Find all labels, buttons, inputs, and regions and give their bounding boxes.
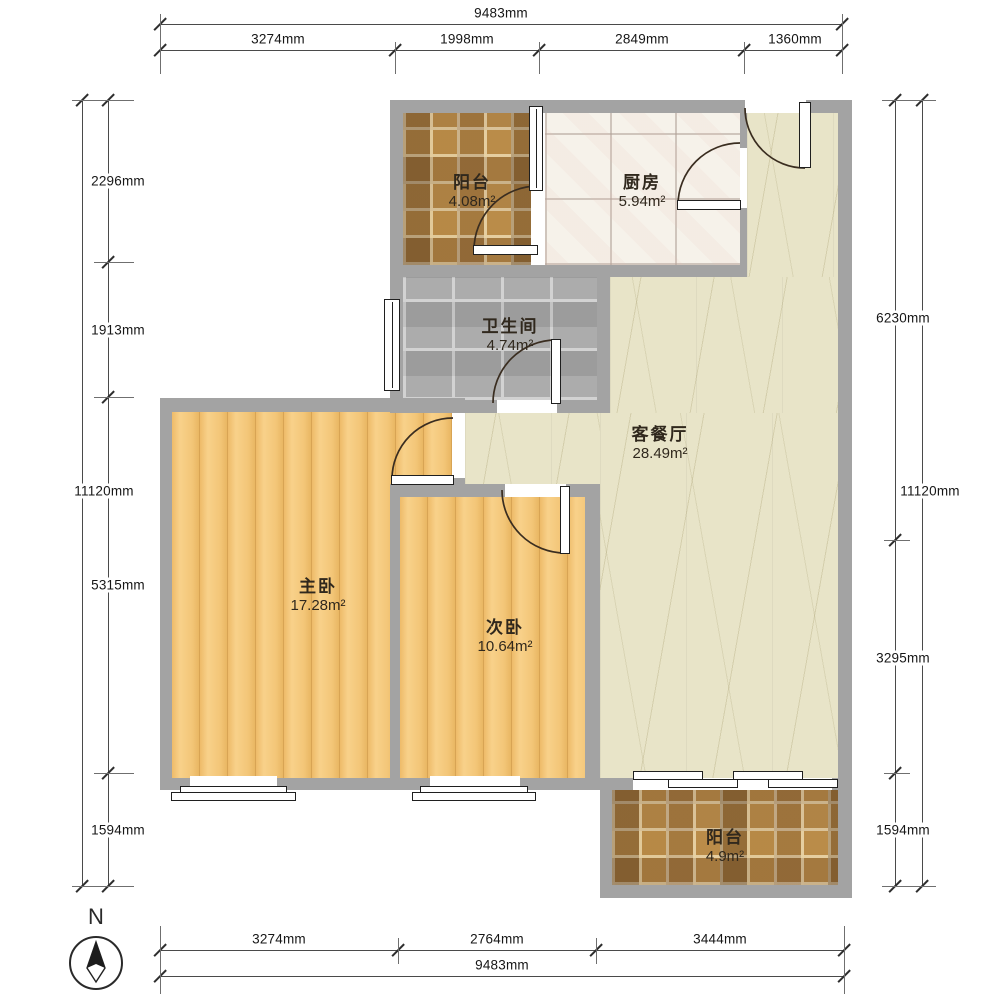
room-label-bathroom: 卫生间 4.74m² (482, 317, 539, 355)
room-area: 17.28m² (290, 596, 345, 615)
kitchen-door-leaf (677, 200, 741, 210)
bathroom-window (384, 299, 400, 391)
extension-line (842, 14, 843, 74)
dim-left-total: 11120mm (72, 484, 135, 499)
dim-right-seg-2: 3295mm (874, 651, 932, 666)
compass-needle-icon (71, 938, 121, 988)
room-label-balcony-top: 阳台 4.08m² (449, 173, 496, 211)
room-label-master-bedroom: 主卧 17.28m² (290, 577, 345, 615)
extension-line (884, 773, 910, 774)
extension-line (882, 100, 936, 101)
extension-line (398, 938, 399, 964)
dim-top-seg-4: 1360mm (766, 32, 824, 47)
extension-line (94, 773, 134, 774)
room-name: 客餐厅 (632, 425, 689, 444)
dim-right-seg-3: 1594mm (874, 823, 932, 838)
room-area: 4.08m² (449, 192, 496, 211)
room-label-balcony-bottom: 阳台 4.9m² (706, 828, 744, 866)
second-bay-window-frame-2 (412, 792, 536, 801)
kitchen-door-arc (678, 143, 740, 205)
dim-line-bottom-segments (160, 950, 844, 951)
dim-bottom-seg-3: 3444mm (691, 932, 749, 947)
master-bay-window-frame-2 (171, 792, 296, 801)
room-area: 28.49m² (632, 444, 689, 463)
extension-line (395, 42, 396, 74)
dim-top-total: 9483mm (472, 6, 530, 21)
entry-door-leaf (799, 102, 811, 168)
dim-left-seg-2: 1913mm (89, 323, 147, 338)
extension-line (596, 938, 597, 964)
sliding-door-panel-2 (668, 779, 738, 788)
room-label-living: 客餐厅 28.49m² (632, 425, 689, 463)
second-door-leaf (560, 486, 570, 554)
room-label-second-bedroom: 次卧 10.64m² (477, 618, 532, 656)
window-mullion (536, 109, 537, 188)
floor-plan-page: { "compass": { "north_label": "N" }, "ro… (0, 0, 1000, 1000)
room-name: 阳台 (706, 828, 744, 847)
compass-north-label: N (88, 906, 104, 928)
master-door-arc (392, 418, 453, 479)
room-name: 阳台 (449, 173, 496, 192)
entry-door-arc (745, 108, 805, 168)
room-label-kitchen: 厨房 5.94m² (619, 173, 666, 211)
dim-bottom-seg-2: 2764mm (468, 932, 526, 947)
extension-line (160, 14, 161, 74)
door-arcs-layer (0, 0, 1000, 1000)
master-door-leaf (391, 475, 454, 485)
dim-left-seg-3: 5315mm (89, 578, 147, 593)
bathroom-door-leaf (551, 339, 561, 404)
dim-left-seg-1: 2296mm (89, 174, 147, 189)
dim-bottom-total: 9483mm (473, 958, 531, 973)
room-area: 4.74m² (482, 336, 539, 355)
window-mullion (392, 302, 393, 388)
dim-line-bottom-total (160, 976, 844, 977)
sliding-door-panel-4 (768, 779, 838, 788)
dim-top-seg-1: 3274mm (249, 32, 307, 47)
compass (69, 936, 123, 990)
balcony-kitchen-window (529, 106, 543, 191)
extension-line (160, 926, 161, 994)
extension-line (882, 886, 936, 887)
dim-line-top-segments (160, 50, 842, 51)
extension-line (539, 42, 540, 74)
extension-line (94, 262, 134, 263)
extension-line (844, 926, 845, 994)
dim-top-seg-3: 2849mm (613, 32, 671, 47)
dim-line-right-segments (895, 100, 896, 886)
extension-line (72, 886, 134, 887)
balcony-top-door-leaf (473, 245, 538, 255)
room-name: 卫生间 (482, 317, 539, 336)
dim-top-seg-2: 1998mm (438, 32, 496, 47)
room-name: 厨房 (619, 173, 666, 192)
second-door-arc (502, 490, 565, 553)
room-area: 10.64m² (477, 637, 532, 656)
room-name: 次卧 (477, 618, 532, 637)
extension-line (72, 100, 134, 101)
extension-line (884, 540, 910, 541)
dim-right-total: 11120mm (898, 484, 961, 499)
dim-line-top-total (160, 24, 842, 25)
room-area: 5.94m² (619, 192, 666, 211)
extension-line (94, 397, 134, 398)
dim-bottom-seg-1: 3274mm (250, 932, 308, 947)
dim-right-seg-1: 6230mm (874, 311, 932, 326)
room-area: 4.9m² (706, 847, 744, 866)
dim-left-seg-4: 1594mm (89, 823, 147, 838)
room-name: 主卧 (290, 577, 345, 596)
extension-line (744, 42, 745, 74)
